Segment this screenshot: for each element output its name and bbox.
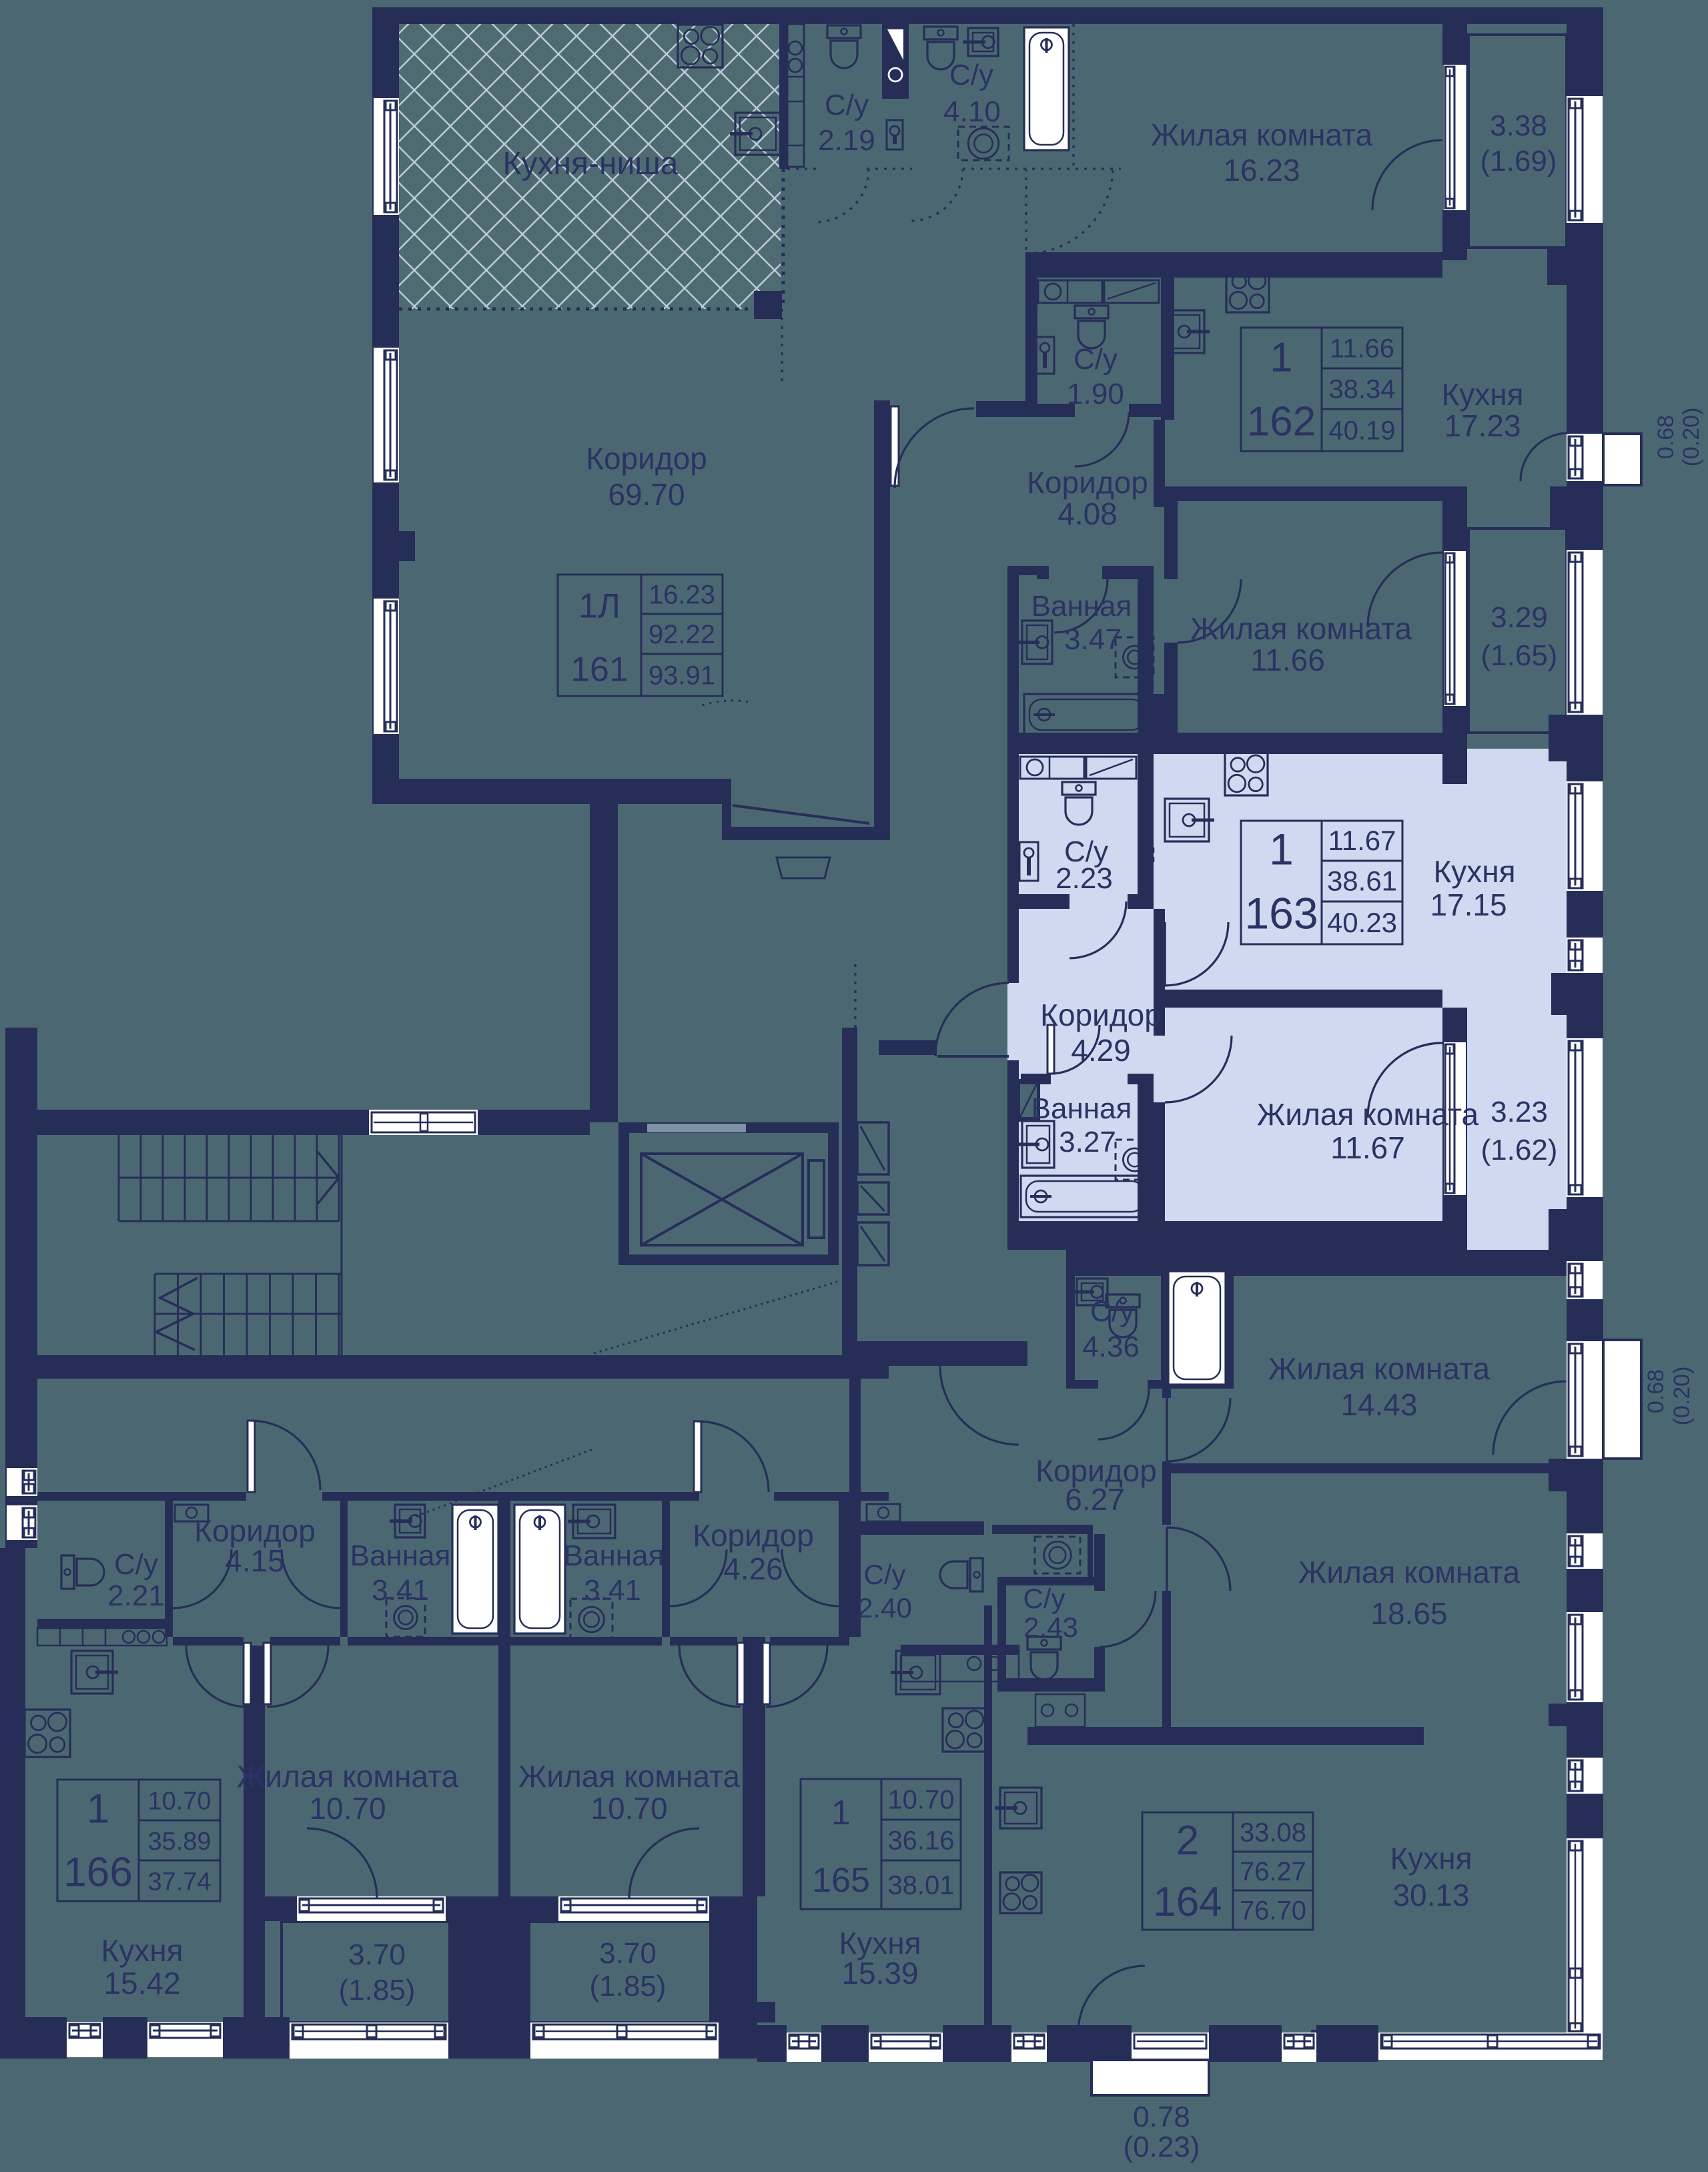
svg-text:11.66: 11.66 (1330, 334, 1394, 364)
svg-text:4.29: 4.29 (1071, 1033, 1131, 1068)
svg-text:165: 165 (812, 1861, 870, 1900)
svg-text:0.68: 0.68 (1653, 415, 1679, 459)
svg-text:Жилая комната: Жилая комната (518, 1759, 741, 1794)
svg-text:Жилая комната: Жилая комната (1257, 1097, 1479, 1132)
svg-text:15.42: 15.42 (103, 1966, 180, 2001)
svg-text:1: 1 (1270, 334, 1292, 380)
svg-text:Кухня: Кухня (1433, 854, 1515, 889)
svg-text:3.41: 3.41 (372, 1574, 429, 1607)
svg-text:(0.20): (0.20) (1669, 1367, 1695, 1426)
svg-text:Жилая комната: Жилая комната (1268, 1351, 1490, 1386)
svg-text:163: 163 (1244, 889, 1318, 938)
svg-text:Коридор: Коридор (1040, 998, 1162, 1032)
svg-text:2.21: 2.21 (107, 1579, 165, 1612)
svg-text:40.19: 40.19 (1328, 416, 1395, 446)
svg-text:38.34: 38.34 (1328, 375, 1395, 404)
svg-text:0.68: 0.68 (1643, 1369, 1669, 1413)
svg-text:1: 1 (87, 1786, 109, 1832)
svg-text:14.43: 14.43 (1340, 1387, 1417, 1422)
svg-text:3.38: 3.38 (1490, 109, 1547, 142)
svg-text:Коридор: Коридор (1027, 465, 1148, 500)
svg-text:2.19: 2.19 (818, 124, 875, 157)
svg-text:1: 1 (1269, 824, 1294, 873)
svg-text:11.67: 11.67 (1328, 825, 1396, 856)
svg-text:(1.69): (1.69) (1480, 145, 1557, 177)
svg-text:1.90: 1.90 (1067, 378, 1124, 410)
svg-text:40.23: 40.23 (1327, 907, 1397, 938)
svg-text:11.67: 11.67 (1330, 1130, 1405, 1165)
svg-text:С/у: С/у (864, 1559, 906, 1590)
svg-text:(1.85): (1.85) (590, 1970, 667, 2003)
svg-text:1: 1 (831, 1794, 851, 1832)
svg-text:15.39: 15.39 (841, 1956, 918, 1990)
svg-text:3.47: 3.47 (1064, 623, 1122, 656)
svg-text:16.23: 16.23 (649, 581, 715, 610)
svg-text:С/у: С/у (1023, 1583, 1065, 1614)
svg-text:33.08: 33.08 (1240, 1818, 1306, 1848)
svg-text:4.15: 4.15 (225, 1543, 285, 1578)
svg-text:2.23: 2.23 (1055, 862, 1113, 895)
svg-text:Коридор: Коридор (586, 441, 707, 476)
svg-text:3.27: 3.27 (1059, 1126, 1116, 1158)
svg-text:Жилая комната: Жилая комната (1151, 117, 1373, 152)
svg-text:(1.62): (1.62) (1481, 1134, 1558, 1166)
svg-text:162: 162 (1247, 399, 1316, 445)
svg-text:17.15: 17.15 (1430, 887, 1507, 922)
svg-text:3.70: 3.70 (348, 1938, 406, 1971)
svg-text:(1.85): (1.85) (339, 1974, 416, 2007)
svg-text:С/у: С/у (114, 1548, 158, 1581)
svg-text:Ванная: Ванная (350, 1539, 451, 1572)
svg-text:69.70: 69.70 (608, 477, 685, 512)
svg-text:161: 161 (570, 650, 628, 689)
svg-text:С/у: С/у (1090, 1295, 1134, 1328)
svg-text:Кухня: Кухня (1390, 1841, 1472, 1876)
svg-text:3.41: 3.41 (584, 1574, 641, 1607)
svg-text:164: 164 (1153, 1879, 1222, 1925)
svg-text:92.22: 92.22 (649, 620, 715, 649)
svg-text:С/у: С/у (949, 59, 993, 91)
svg-text:10.70: 10.70 (590, 1791, 667, 1826)
svg-text:4.10: 4.10 (943, 95, 1001, 128)
svg-text:Жилая комната: Жилая комната (1190, 611, 1412, 646)
svg-text:1Л: 1Л (578, 587, 620, 626)
svg-text:11.66: 11.66 (1250, 643, 1325, 677)
svg-text:Ванная: Ванная (564, 1539, 665, 1572)
svg-text:(0.20): (0.20) (1679, 408, 1704, 467)
svg-text:6.27: 6.27 (1065, 1482, 1125, 1517)
svg-text:Ванная: Ванная (1031, 1092, 1132, 1125)
svg-text:37.74: 37.74 (147, 1868, 211, 1896)
svg-text:Кухня: Кухня (101, 1933, 183, 1968)
svg-text:10.70: 10.70 (147, 1788, 211, 1816)
svg-text:10.70: 10.70 (309, 1791, 386, 1826)
svg-text:3.23: 3.23 (1490, 1096, 1548, 1128)
svg-text:3.29: 3.29 (1490, 601, 1548, 634)
svg-text:18.65: 18.65 (1370, 1596, 1447, 1631)
svg-text:Кухня-ниша: Кухня-ниша (503, 146, 679, 182)
svg-text:4.08: 4.08 (1057, 496, 1118, 531)
svg-text:93.91: 93.91 (649, 661, 715, 691)
svg-text:С/у: С/у (1074, 343, 1118, 376)
svg-text:76.27: 76.27 (1240, 1857, 1306, 1886)
svg-text:Ванная: Ванная (1031, 590, 1132, 623)
svg-text:С/у: С/у (825, 89, 869, 121)
svg-text:Жилая комната: Жилая комната (237, 1759, 459, 1794)
svg-text:4.26: 4.26 (723, 1551, 783, 1586)
svg-text:17.23: 17.23 (1444, 408, 1521, 443)
svg-text:3.70: 3.70 (599, 1937, 657, 1970)
svg-text:Жилая комната: Жилая комната (1298, 1555, 1521, 1589)
svg-text:166: 166 (63, 1849, 132, 1895)
svg-text:Кухня: Кухня (1441, 377, 1523, 412)
svg-text:2: 2 (1176, 1818, 1199, 1864)
svg-text:16.23: 16.23 (1223, 153, 1300, 188)
svg-text:30.13: 30.13 (1392, 1878, 1469, 1912)
svg-text:38.01: 38.01 (887, 1871, 954, 1900)
svg-text:2.43: 2.43 (1023, 1611, 1078, 1643)
svg-text:2.40: 2.40 (857, 1592, 912, 1623)
svg-text:10.70: 10.70 (887, 1786, 954, 1815)
svg-text:Коридор: Коридор (693, 1518, 814, 1553)
svg-text:35.89: 35.89 (147, 1828, 211, 1856)
svg-text:36.16: 36.16 (887, 1826, 954, 1856)
svg-text:(1.65): (1.65) (1481, 639, 1558, 672)
svg-text:76.70: 76.70 (1240, 1896, 1306, 1926)
svg-text:0.78: 0.78 (1133, 2101, 1190, 2133)
svg-text:38.61: 38.61 (1327, 865, 1397, 897)
svg-text:4.36: 4.36 (1082, 1331, 1140, 1363)
svg-text:(0.23): (0.23) (1124, 2131, 1200, 2163)
